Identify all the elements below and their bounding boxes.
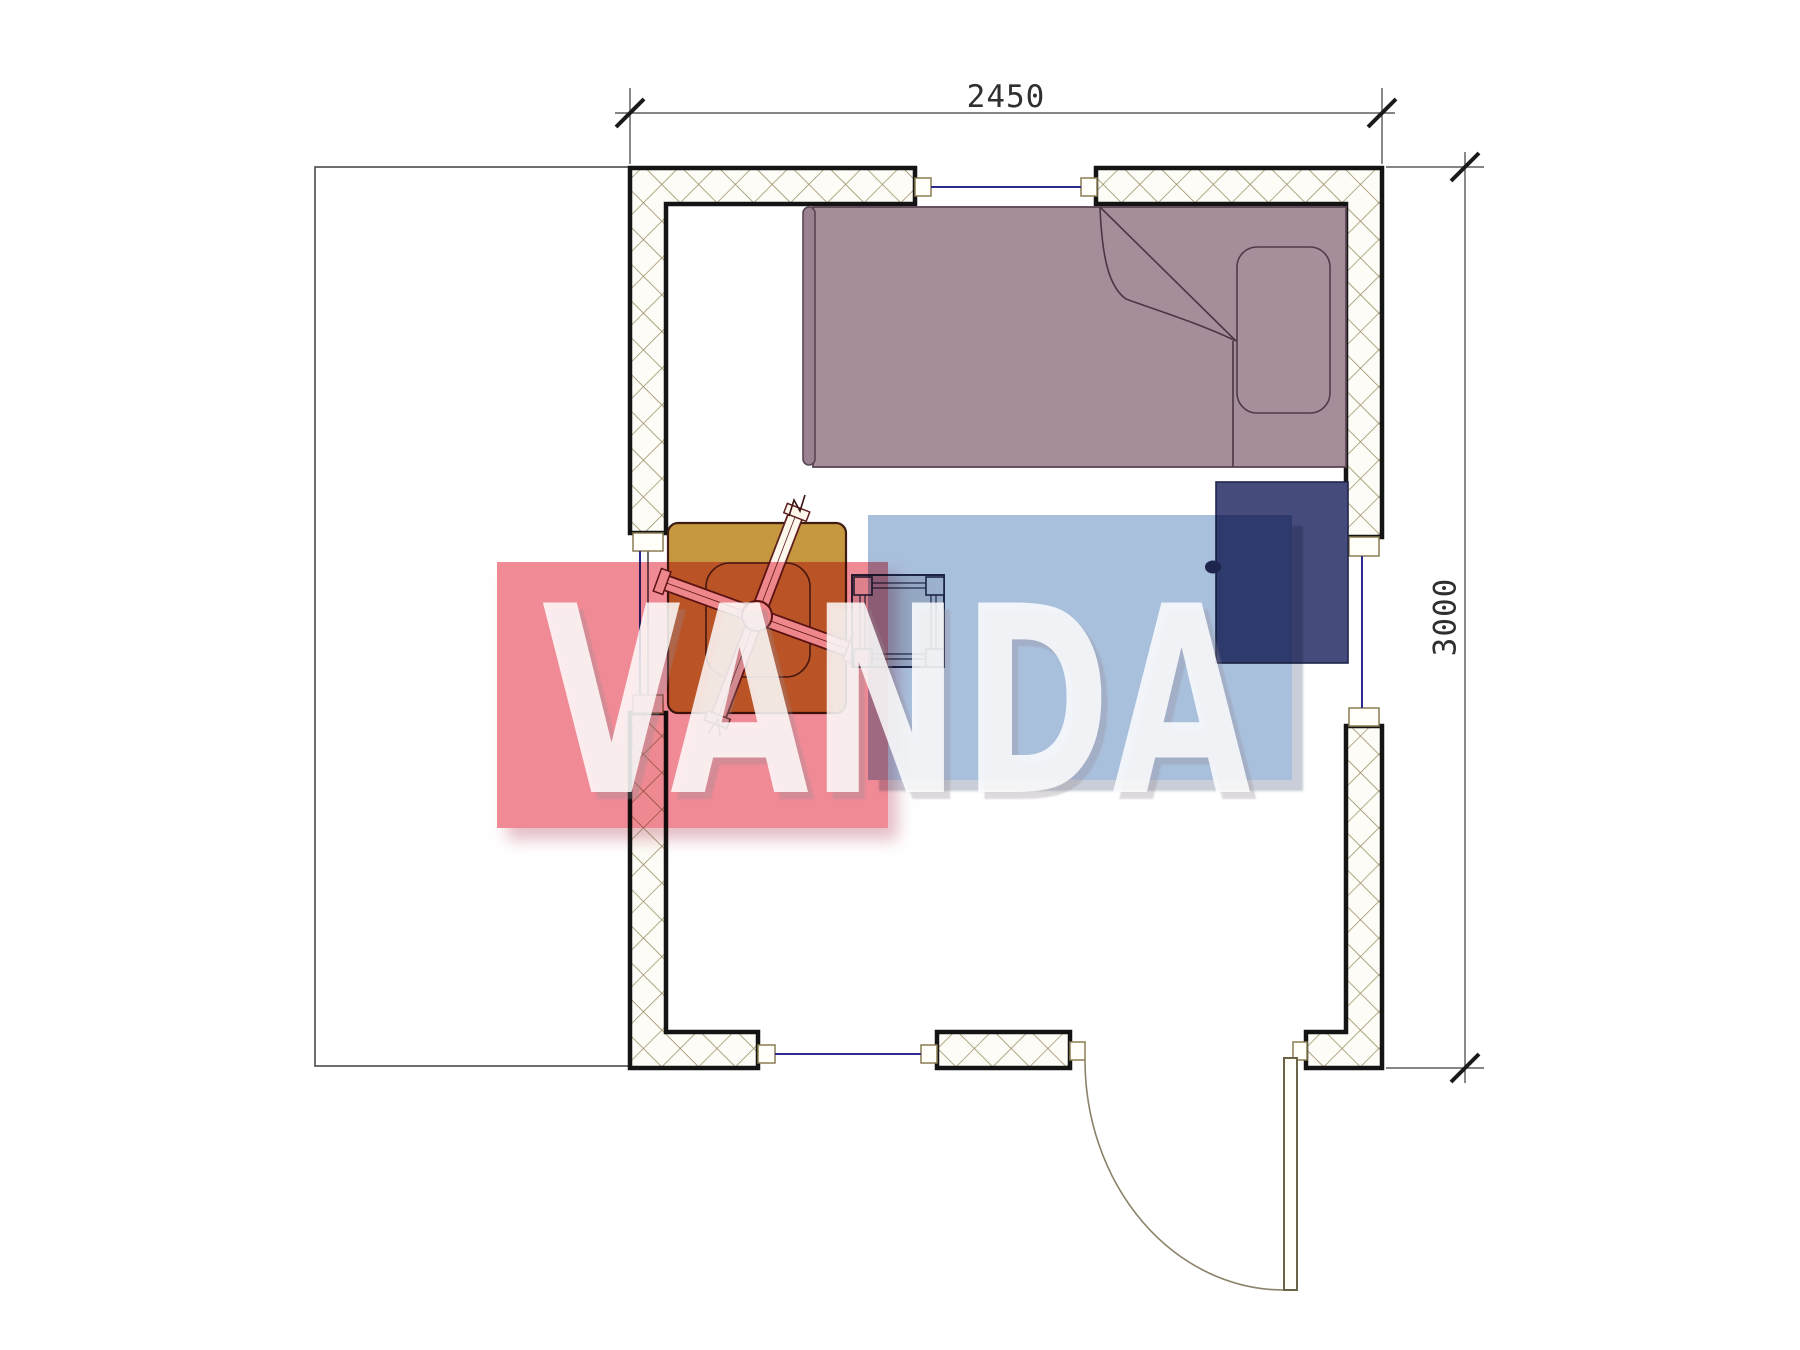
pillow (1237, 247, 1330, 413)
bed-footboard (803, 207, 815, 465)
window-jamb (1349, 537, 1379, 556)
window-top (915, 178, 1097, 196)
window-right (1349, 537, 1379, 726)
dimension-right-label: 3000 (1428, 578, 1464, 657)
entry-door (1070, 1042, 1307, 1290)
door-jamb (1070, 1042, 1085, 1060)
dimension-top: 2450 (615, 79, 1396, 164)
wall-bottom-right (1306, 726, 1382, 1068)
door-leaf (1284, 1058, 1297, 1290)
floor-plan-page: 2450 3000 (0, 0, 1800, 1350)
wall-bottom-middle (937, 1032, 1070, 1068)
window-jamb (1081, 178, 1097, 196)
window-jamb (921, 1045, 937, 1063)
watermark-text: VANDA (542, 573, 1252, 833)
window-jamb (633, 533, 663, 551)
dimension-top-label: 2450 (967, 79, 1046, 115)
dimension-right: 3000 (1386, 152, 1484, 1083)
window-bottom (758, 1045, 937, 1063)
window-jamb (1349, 708, 1379, 726)
window-jamb (758, 1045, 775, 1063)
window-jamb (915, 178, 931, 196)
door-swing-arc (1085, 1060, 1284, 1290)
single-bed (803, 207, 1346, 467)
